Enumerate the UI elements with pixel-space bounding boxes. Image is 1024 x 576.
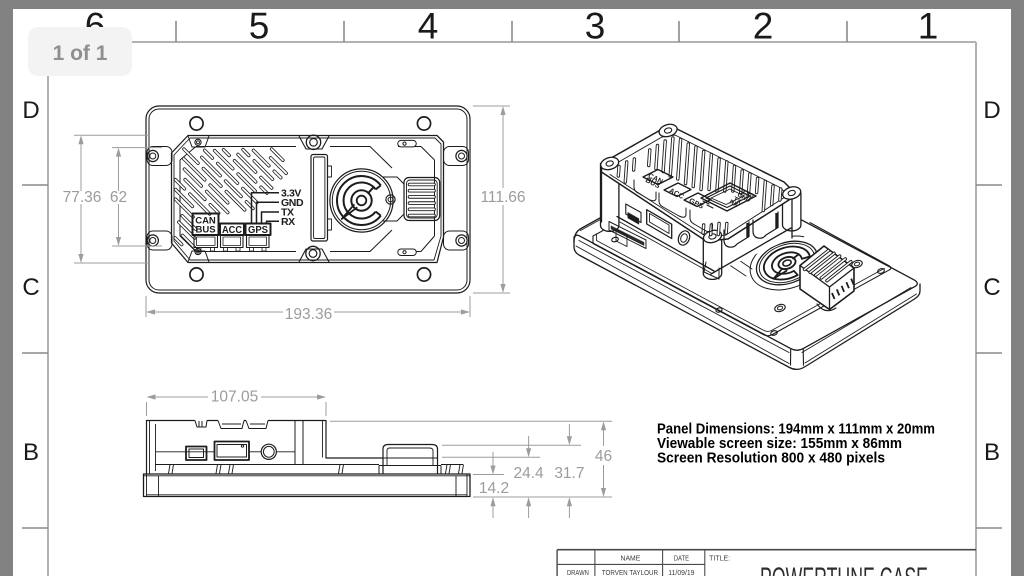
svg-text:193.36: 193.36 bbox=[285, 306, 332, 323]
svg-text:BUS: BUS bbox=[195, 225, 215, 236]
svg-text:C: C bbox=[983, 274, 1000, 301]
svg-text:14.2: 14.2 bbox=[479, 480, 509, 497]
svg-text:24.4: 24.4 bbox=[514, 465, 545, 482]
svg-text:11/09/19: 11/09/19 bbox=[668, 570, 694, 576]
svg-text:DATE: DATE bbox=[674, 556, 690, 563]
svg-text:ACC: ACC bbox=[222, 224, 242, 236]
svg-text:B: B bbox=[984, 439, 1000, 466]
svg-text:GPS: GPS bbox=[248, 224, 268, 236]
svg-text:46: 46 bbox=[595, 448, 612, 465]
svg-text:B: B bbox=[23, 439, 39, 466]
svg-text:TITLE:: TITLE: bbox=[709, 556, 730, 563]
svg-text:1: 1 bbox=[918, 6, 939, 47]
svg-text:3: 3 bbox=[585, 6, 606, 47]
svg-text:31.7: 31.7 bbox=[554, 465, 584, 482]
svg-text:1 of 1: 1 of 1 bbox=[53, 42, 108, 65]
svg-text:NAME: NAME bbox=[621, 556, 641, 563]
svg-text:107.05: 107.05 bbox=[211, 389, 258, 406]
svg-text:RX: RX bbox=[281, 216, 295, 228]
svg-text:2: 2 bbox=[753, 6, 774, 47]
svg-text:111.66: 111.66 bbox=[480, 189, 525, 206]
svg-text:77.36: 77.36 bbox=[63, 189, 102, 206]
svg-text:Screen Resolution 800 x 480 pi: Screen Resolution 800 x 480 pixels bbox=[657, 451, 885, 467]
svg-text:DRAWN: DRAWN bbox=[567, 570, 589, 576]
svg-text:4: 4 bbox=[418, 6, 439, 47]
svg-text:C: C bbox=[22, 274, 39, 301]
svg-text:62: 62 bbox=[110, 189, 127, 206]
svg-text:POWERTUNE CASE: POWERTUNE CASE bbox=[760, 562, 928, 576]
svg-text:D: D bbox=[983, 97, 1000, 124]
svg-text:5: 5 bbox=[249, 6, 270, 47]
svg-text:D: D bbox=[22, 97, 39, 124]
svg-text:TORVEN TAYLOUR: TORVEN TAYLOUR bbox=[602, 570, 658, 576]
